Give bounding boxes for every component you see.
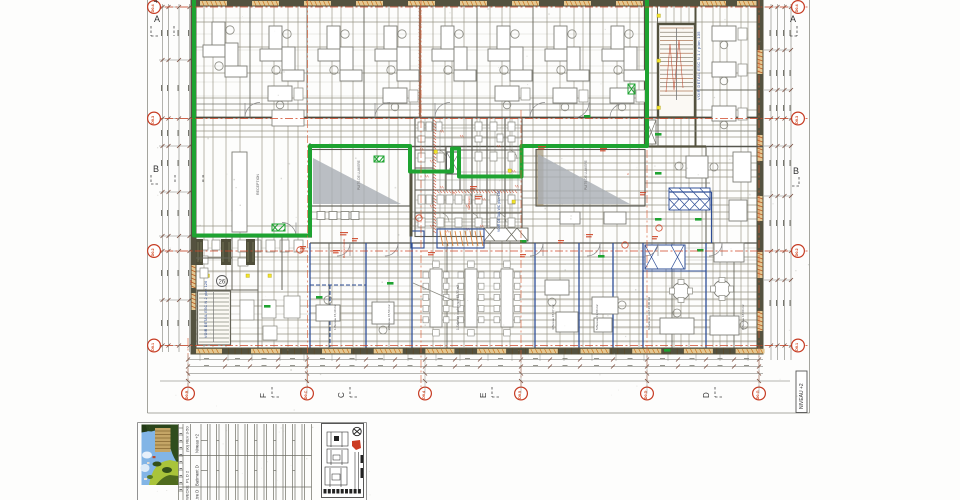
svg-text:PL D 2: PL D 2 [185, 470, 190, 483]
svg-text:(90) REV 3-50: (90) REV 3-50 [185, 426, 190, 452]
svg-text:PUITS DE LUMIERE: PUITS DE LUMIERE [584, 160, 588, 190]
svg-text:Batiment D: Batiment D [195, 465, 200, 486]
svg-text:D0.C: D0.C [304, 390, 308, 399]
svg-text:VOIR DETAIL ESC N 1 / plan 135: VOIR DETAIL ESC N 1 / plan 135 [696, 31, 701, 100]
svg-text:VOIR DETAIL ESC N 2 plan 126: VOIR DETAIL ESC N 2 plan 126 [204, 281, 208, 338]
svg-text:NIVEAU +2: NIVEAU +2 [799, 383, 805, 409]
svg-text:D0.3: D0.3 [795, 116, 799, 124]
svg-text:5.Bureau 19,80 m2: 5.Bureau 19,80 m2 [595, 304, 599, 330]
svg-text:D0.B: D0.B [185, 390, 189, 399]
svg-text:6.Salle de conf 28,00 m2: 6.Salle de conf 28,00 m2 [647, 296, 651, 330]
svg-text:D0.5: D0.5 [518, 391, 522, 399]
svg-text:A: A [790, 14, 796, 24]
svg-text:D0.1: D0.1 [795, 343, 799, 351]
svg-text:D0.2: D0.2 [151, 248, 155, 256]
svg-text:E: E [479, 393, 488, 398]
svg-text:1.Salle de conference 63,30 m2: 1.Salle de conference 63,30 m2 [456, 285, 460, 330]
svg-text:D0.G: D0.G [756, 390, 760, 399]
svg-text:Rampe mobile: Rampe mobile [342, 238, 346, 258]
svg-text:B: B [153, 164, 159, 174]
svg-text:.tre D: .tre D [195, 490, 200, 500]
svg-text:D: D [702, 392, 711, 398]
svg-text:D0.2: D0.2 [795, 248, 799, 256]
svg-text:Ventilation: Ventilation [467, 196, 471, 210]
svg-text:A: A [154, 14, 160, 24]
svg-text:WECKE: WECKE [185, 485, 190, 500]
svg-text:C: C [337, 392, 346, 398]
svg-text:F90: F90 [189, 279, 193, 285]
svg-text:D0.4: D0.4 [422, 390, 426, 399]
svg-text:8.Bureau 18,00 m2: 8.Bureau 18,00 m2 [741, 304, 745, 330]
svg-text:VOIR DETAIL WC plan 138: VOIR DETAIL WC plan 138 [497, 191, 501, 232]
svg-text:4: 4 [154, 0, 158, 5]
svg-text:Niveau +2: Niveau +2 [195, 433, 200, 453]
svg-text:RECEPTION: RECEPTION [256, 174, 260, 195]
svg-text:D0.3: D0.3 [151, 116, 155, 124]
svg-text:D0.1: D0.1 [151, 343, 155, 351]
svg-text:D0.D: D0.D [644, 390, 648, 399]
svg-text:4.Bureau 15,07 m2: 4.Bureau 15,07 m2 [551, 304, 555, 330]
svg-text:D0.4: D0.4 [795, 4, 799, 13]
svg-text:2.Bureau 15,50 m2: 2.Bureau 15,50 m2 [387, 304, 391, 330]
svg-text:F: F [259, 393, 268, 398]
svg-text:B: B [793, 166, 799, 176]
svg-text:26: 26 [219, 280, 226, 286]
svg-text:1.Bureau 15,30 m2: 1.Bureau 15,30 m2 [333, 304, 337, 330]
svg-text:PUITS DE LUMIERE: PUITS DE LUMIERE [357, 160, 361, 190]
